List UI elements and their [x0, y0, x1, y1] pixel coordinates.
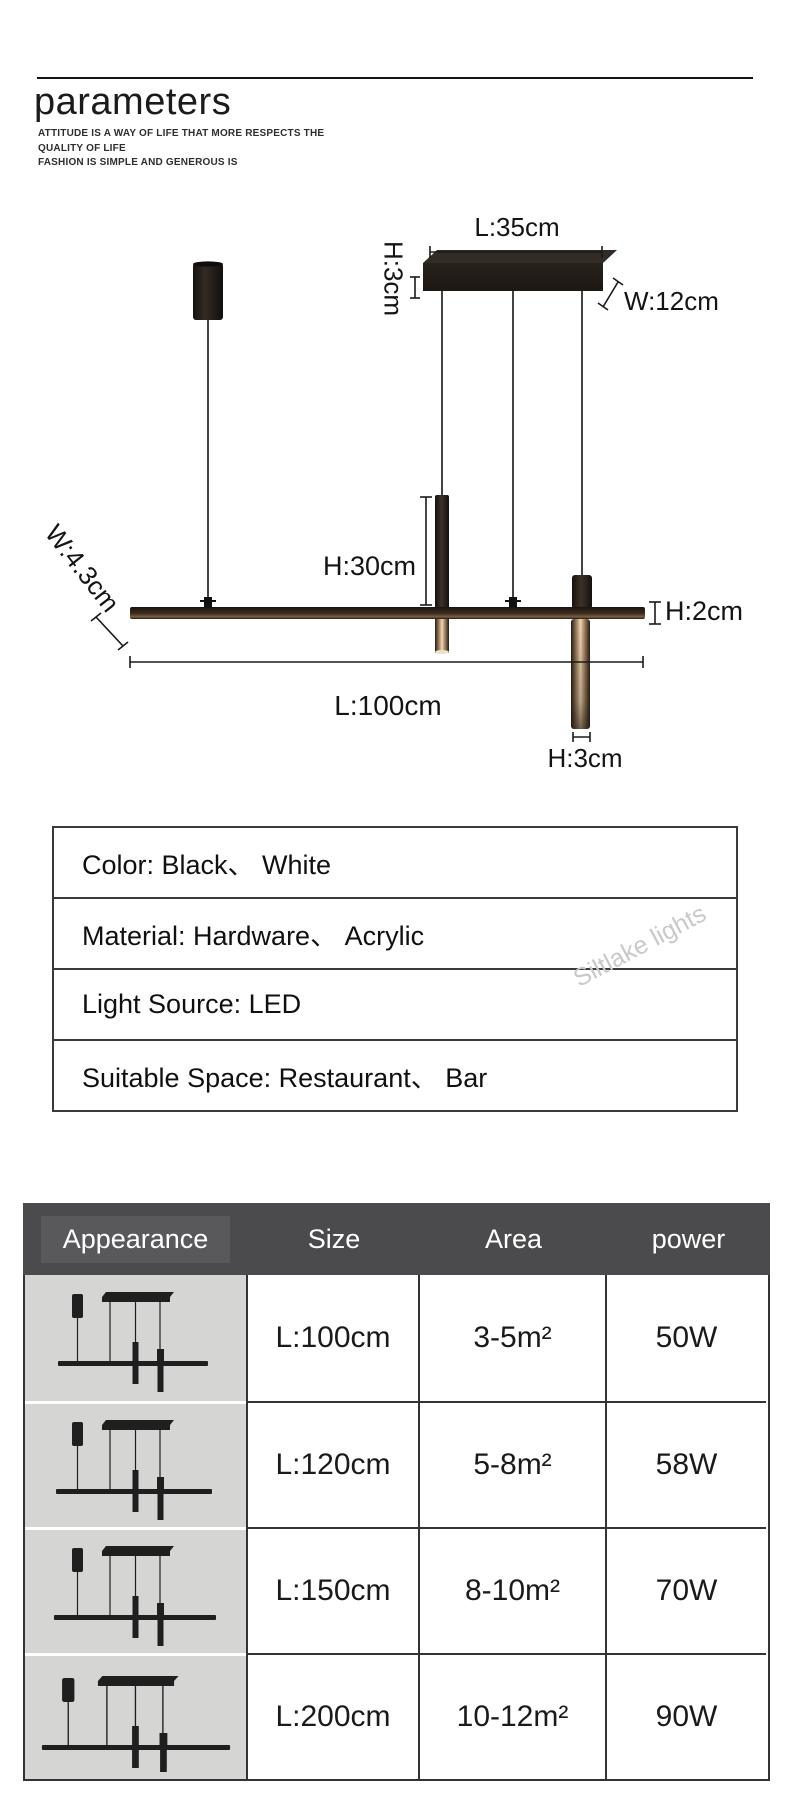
size-table: Appearance Size Area power — [23, 1203, 770, 1781]
power-value: 50W — [605, 1275, 766, 1401]
header-appearance-label: Appearance — [41, 1216, 231, 1263]
spec-row-material: Material: Hardware、 Acrylic — [54, 897, 736, 968]
header-cell-size: Size — [248, 1203, 420, 1275]
center-tube-lower-glow — [435, 619, 449, 653]
size-value: L:120cm — [246, 1401, 418, 1527]
size-value: L:100cm — [246, 1275, 418, 1401]
header-cell-power: power — [607, 1203, 770, 1275]
appearance-cell — [25, 1275, 246, 1401]
lamp-thumbnail-icon — [48, 1536, 224, 1648]
size-table-body: L:100cm 3-5m² 50W — [23, 1275, 770, 1781]
dimension-diagram — [0, 0, 790, 800]
plate-cords — [442, 291, 582, 599]
product-spec-page: parameters ATTITUDE IS A WAY OF LIFE THA… — [0, 0, 790, 1802]
left-cord-connector — [200, 597, 216, 607]
spec-color-text: Color: Black、 White — [82, 843, 331, 882]
size-table-header: Appearance Size Area power — [23, 1203, 770, 1275]
header-cell-area: Area — [420, 1203, 607, 1275]
size-value: L:150cm — [246, 1527, 418, 1653]
table-row: L:200cm 10-12m² 90W — [25, 1653, 768, 1779]
right-socket-tube — [572, 575, 592, 609]
area-value: 5-8m² — [418, 1401, 605, 1527]
size-value: L:200cm — [246, 1653, 418, 1779]
center-cord-connector — [505, 597, 521, 607]
spec-material-text: Material: Hardware、 Acrylic — [82, 914, 424, 953]
lamp-thumbnail-icon — [37, 1662, 234, 1774]
dim-plate-length-label: L:35cm — [467, 212, 567, 243]
appearance-cell — [25, 1527, 246, 1653]
power-value: 58W — [605, 1401, 766, 1527]
table-row: L:100cm 3-5m² 50W — [25, 1275, 768, 1401]
area-value: 10-12m² — [418, 1653, 605, 1779]
spec-suitable-space-text: Suitable Space: Restaurant、 Bar — [82, 1056, 487, 1095]
table-row: L:120cm 5-8m² 58W — [25, 1401, 768, 1527]
area-value: 8-10m² — [418, 1527, 605, 1653]
dim-plate-width-label: W:12cm — [624, 286, 719, 317]
spec-table: Color: Black、 White Material: Hardware、 … — [52, 826, 738, 1112]
right-lower-tube — [571, 619, 590, 729]
dim-bar-length-label: L:100cm — [328, 690, 448, 722]
spec-light-source-text: Light Source: LED — [82, 989, 301, 1020]
dim-bar-height-label: H:2cm — [665, 596, 743, 627]
header-cell-appearance: Appearance — [23, 1203, 248, 1275]
counterweight-cylinder — [193, 261, 223, 320]
power-value: 90W — [605, 1653, 766, 1779]
center-tube-tip — [435, 650, 449, 654]
center-tube-upper — [435, 495, 449, 609]
lamp-thumbnail-icon — [48, 1282, 224, 1394]
spec-row-suitable-space: Suitable Space: Restaurant、 Bar — [54, 1039, 736, 1110]
spec-row-light-source: Light Source: LED — [54, 968, 736, 1039]
ceiling-plate — [423, 250, 617, 291]
spec-row-color: Color: Black、 White — [54, 828, 736, 897]
dim-plate-height-label: H:3cm — [378, 239, 409, 319]
appearance-cell — [25, 1401, 246, 1527]
dim-tube-height-label: H:30cm — [320, 551, 416, 582]
area-value: 3-5m² — [418, 1275, 605, 1401]
dim-bottom-tube-height-label: H:3cm — [545, 743, 625, 774]
table-row: L:150cm 8-10m² 70W — [25, 1527, 768, 1653]
lamp-thumbnail-icon — [48, 1410, 224, 1522]
power-value: 70W — [605, 1527, 766, 1653]
main-bar — [130, 607, 645, 619]
appearance-cell — [25, 1653, 246, 1779]
